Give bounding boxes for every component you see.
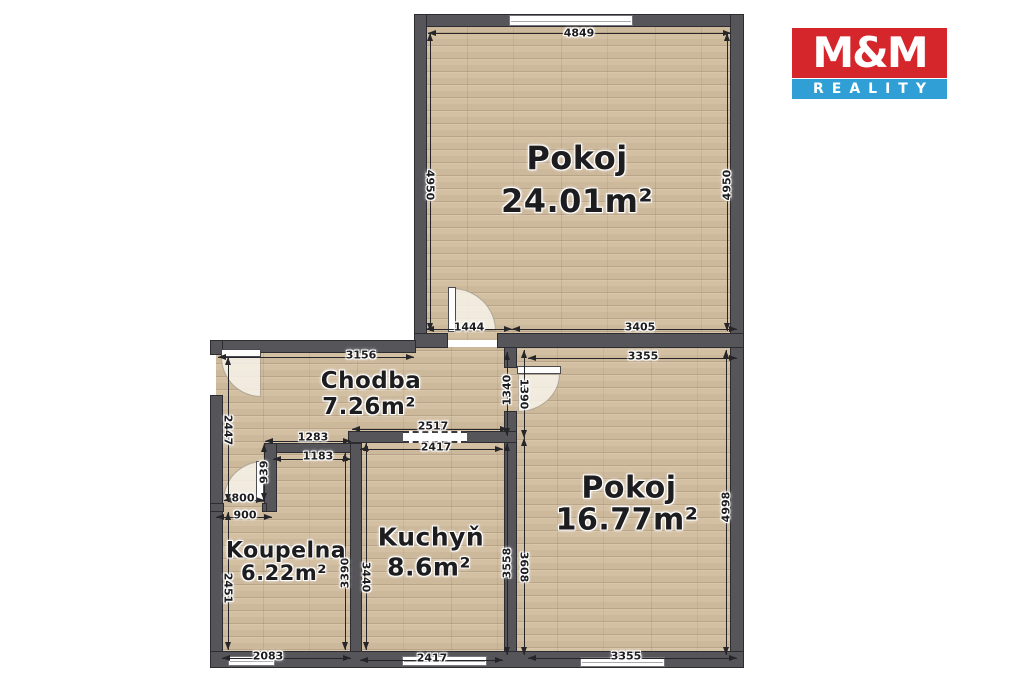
room-area-pokoj-1: 24.01m²	[501, 182, 653, 220]
mm-reality-logo: M&M REALITY	[792, 28, 947, 99]
dimension-label: 1444	[454, 321, 485, 334]
room-area-chodba: 7.26m²	[322, 394, 416, 420]
dimension-label: 4950	[424, 170, 437, 201]
room-name-pokoj-2: Pokoj	[581, 471, 676, 506]
floorplan-canvas: 4849 4950 4950 1444 3405 3156 3355 1340 …	[0, 0, 1024, 683]
dimension-label: 1390	[518, 379, 531, 410]
wall-bath-door-b	[262, 503, 267, 512]
dimension-label: 1283	[298, 431, 329, 444]
dimension-label: 3440	[360, 562, 373, 593]
dimension-label: 1340	[501, 375, 514, 406]
dimension-label: 800	[232, 492, 255, 505]
dimension-label: 900	[234, 509, 257, 522]
dimension-label: 3405	[625, 321, 656, 334]
dimension-line	[218, 357, 414, 358]
room-area-kuchyn: 8.6m²	[387, 553, 471, 582]
logo-subtitle: REALITY	[792, 79, 947, 99]
dimension-label: 4998	[720, 492, 733, 523]
room-name-koupelna: Koupelna	[226, 539, 346, 564]
dimension-label: 1183	[303, 450, 334, 463]
dimension-label: 3608	[518, 552, 531, 583]
room-area-pokoj-2: 16.77m²	[556, 503, 699, 538]
dimension-label: 4950	[721, 170, 734, 201]
wall-mid-horizontal-a	[414, 333, 448, 348]
logo-title: M&M	[792, 28, 947, 78]
dimension-label: 3355	[628, 350, 659, 363]
dimension-label: 939	[258, 461, 271, 484]
dimension-label: 2083	[253, 650, 284, 663]
dimension-label: 2417	[417, 652, 448, 665]
dimension-label: 2417	[421, 441, 452, 454]
dimension-label: 3558	[501, 548, 514, 579]
room-name-chodba: Chodba	[321, 368, 422, 394]
dimension-label: 2517	[418, 420, 449, 433]
room-area-koupelna: 6.22m²	[241, 561, 327, 585]
dimension-label: 3355	[611, 650, 642, 663]
dimension-label: 3156	[346, 349, 377, 362]
room-name-pokoj-1: Pokoj	[526, 139, 627, 177]
door-leaf-entrance	[221, 349, 261, 357]
dimension-label: 2451	[222, 573, 235, 604]
dimension-label: 4849	[564, 27, 595, 40]
room-name-kuchyn: Kuchyň	[378, 523, 484, 552]
wall-divider-bath-kitchen	[350, 443, 362, 652]
dimension-line	[524, 438, 525, 655]
wall-mid-horizontal-b	[497, 333, 744, 348]
wall-bath-door-a	[210, 503, 224, 512]
dimension-label: 2447	[222, 415, 235, 446]
dimension-line	[366, 443, 367, 650]
window-top-room	[509, 15, 633, 26]
dimension-line	[222, 658, 351, 659]
